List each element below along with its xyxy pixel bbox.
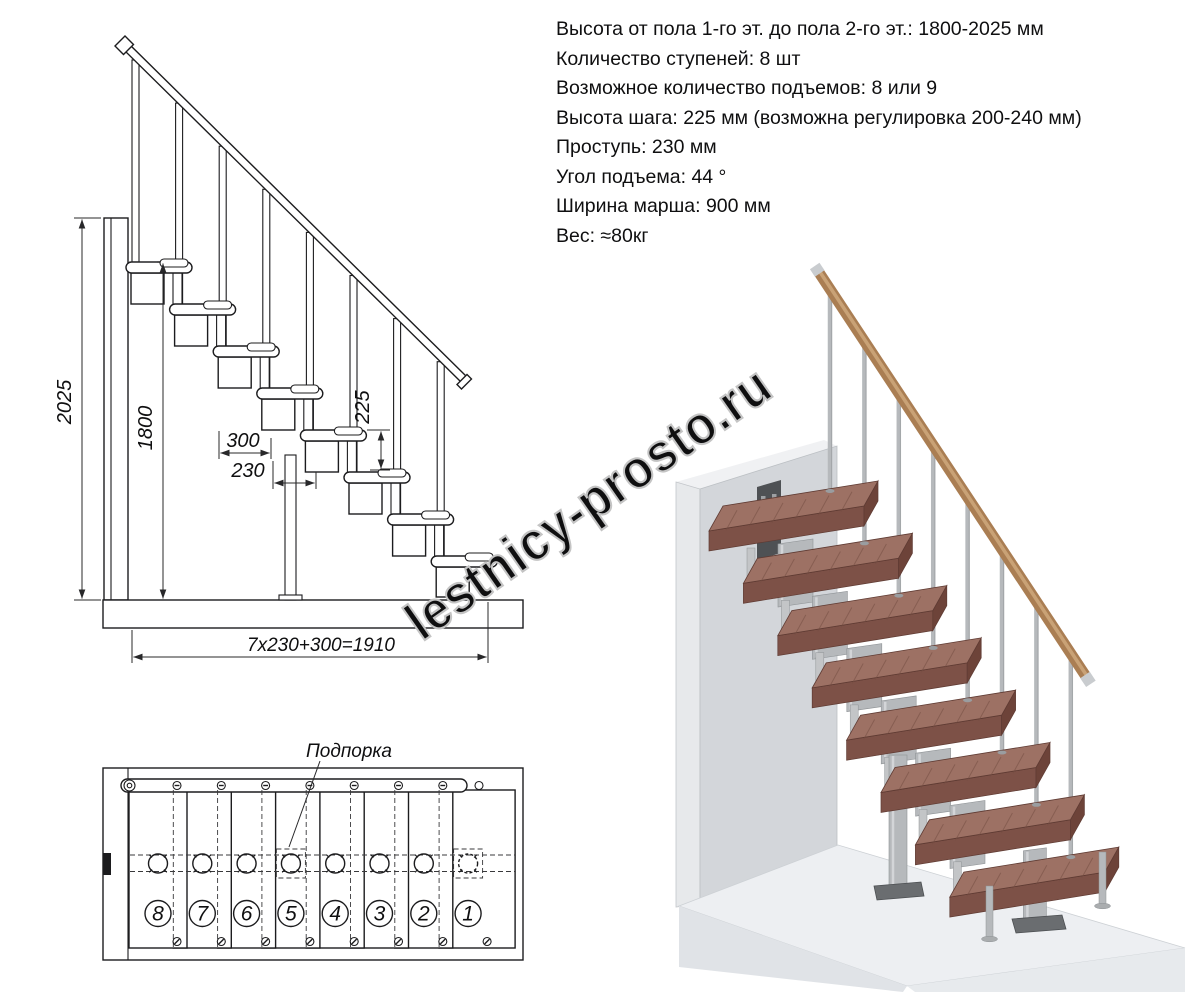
step-support-box — [218, 357, 251, 388]
side-stand-pipe — [347, 441, 356, 474]
step-tread-cap — [334, 427, 362, 435]
step-tread-cap — [291, 385, 319, 393]
side-stand-pipe — [435, 525, 444, 558]
plan-wall-bracket — [103, 853, 111, 875]
plan-step-number: 3 — [374, 903, 386, 926]
step-support-box — [175, 315, 208, 346]
plan-step-boards — [129, 790, 515, 948]
wall-column — [104, 218, 128, 600]
dim-tread-depth: 230 — [230, 460, 264, 482]
dim-height-total: 2025 — [54, 379, 76, 425]
plan-step-number: 1 — [462, 903, 474, 926]
side-stand-pipe — [260, 357, 269, 390]
plan-step-number: 8 — [152, 903, 164, 926]
step-support-box — [262, 399, 295, 430]
step-tread-cap — [247, 343, 275, 351]
side-stand-pipe — [391, 483, 400, 516]
step-support-box — [349, 483, 382, 514]
step-support-box — [305, 441, 338, 472]
plan-step-number: 6 — [241, 903, 253, 926]
dim-total-run: 7x230+300=1910 — [247, 635, 395, 656]
staircase-diagram: 2025 1800 225 300 230 7x230+300=1910 — [0, 0, 1190, 992]
side-handrail — [115, 36, 472, 389]
step-tread-cap — [204, 301, 232, 309]
support-post-foot — [279, 595, 302, 600]
handrail-top-cap-3d — [815, 266, 820, 274]
plan-step-number: 5 — [285, 903, 297, 926]
step-support-box — [131, 273, 164, 304]
handrail-end-cap-3d — [1085, 675, 1091, 684]
plan-view-drawing: 87654321 Подпорка — [103, 741, 523, 960]
side-stand-pipe — [217, 315, 226, 348]
dim-height-floor: 1800 — [135, 406, 157, 451]
plan-step-number: 7 — [196, 903, 209, 926]
front-leg — [986, 886, 993, 938]
dim-platform-depth: 300 — [226, 430, 259, 452]
dim-rise: 225 — [352, 389, 374, 424]
step-tread-cap — [160, 259, 188, 267]
end-leg — [1099, 852, 1106, 905]
plan-step-number: 2 — [417, 903, 430, 926]
side-stand-pipe — [173, 273, 182, 306]
step-support-box — [393, 525, 426, 556]
support-label: Подпорка — [306, 741, 392, 762]
plan-step-number: 4 — [329, 903, 341, 926]
support-post-side — [285, 455, 296, 600]
side-stand-pipe — [304, 399, 313, 432]
step-tread-cap — [422, 511, 450, 519]
side-baluster — [132, 60, 139, 262]
